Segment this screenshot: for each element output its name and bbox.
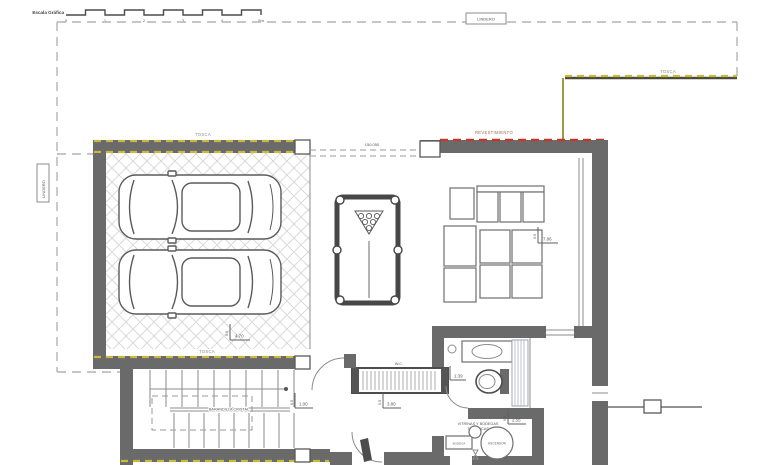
stair-walk-dot: [284, 387, 288, 391]
car-1: [119, 171, 281, 243]
terrace-box: [644, 400, 661, 413]
stair-top-pillar: [295, 356, 310, 369]
hall-bottom-wall-west: [330, 452, 352, 465]
tosca-top-right-label: TOSCA: [660, 69, 676, 74]
bathroom-door-arc: [446, 386, 468, 408]
boundary-top-label: LINDERO: [477, 17, 495, 22]
tosca-garage-bottom-label: TOSCA: [199, 349, 215, 354]
cellar-cabinet-label: BODEGA: [453, 442, 466, 446]
wc-label: W.C.: [395, 362, 403, 366]
dim-living-v: 0.5: [533, 234, 537, 239]
ottoman-4: [512, 265, 542, 298]
right-exterior-wall: [579, 140, 608, 465]
cellar-bottom-door-gap: [450, 456, 472, 465]
sofa-group: [444, 186, 544, 302]
scale-bar: [66, 10, 261, 15]
west-wall-lower: [432, 436, 444, 465]
dim-hall-west-v: 0.5: [290, 400, 294, 405]
cellar-small-circle: [469, 426, 481, 438]
dim-living-h: 7.86: [543, 237, 552, 242]
revestimiento-label: REVESTIMIENTO: [475, 130, 513, 135]
dim-garage-h: 4.70: [235, 334, 244, 339]
level-mark: 150.050: [365, 142, 380, 147]
living-top-wall: REVESTIMIENTO: [420, 130, 608, 157]
cellar-room: VITRINAS Y BODEGAS TEMÁTICAS BODEGA ASCE…: [444, 408, 544, 465]
dim-hall-h: 3.80: [387, 402, 396, 407]
ottoman-3: [480, 265, 510, 298]
dim-cellar-v: 0.5: [503, 416, 507, 421]
stair-block: BARANDILLA CRISTAL: [93, 356, 330, 465]
chaise-1: [444, 226, 476, 266]
dim-hall-v: 0.5: [378, 400, 382, 405]
dim-cellar-h: 2.55: [512, 418, 521, 423]
armchair: [450, 188, 474, 219]
mid-wall-west: [432, 326, 546, 338]
graphic-scale: Escala Gráfica 0 1 2 3 4 5m: [32, 10, 264, 23]
car-2: [119, 246, 281, 318]
billiard-table: [333, 196, 402, 304]
dim-bathroom-h: 1.39: [454, 374, 463, 379]
right-wall-body: [592, 140, 608, 465]
cellar-top-wall: [468, 408, 532, 419]
hall-pillar: [344, 354, 356, 368]
floor-plan-canvas: Escala Gráfica 0 1 2 3 4 5m LINDERO LIND…: [0, 0, 768, 465]
dim-hall-west: 1.00 0.5: [290, 393, 313, 408]
hall-door-arc-top: [312, 358, 344, 390]
garage-top-pillar: [295, 140, 310, 154]
dim-garage-v: 0.5: [225, 331, 229, 336]
dim-hall: 3.80 0.5: [378, 393, 401, 408]
stair-storage-dashed: [152, 396, 252, 430]
railing-label: BARANDILLA CRISTAL: [209, 408, 249, 412]
wardrobe-frame: [352, 368, 448, 393]
wardrobe-end-right: [441, 368, 448, 393]
scale-tick-2: 2: [143, 18, 146, 23]
stair-bottom-pillar: [295, 449, 310, 462]
dim-bathroom-v: 0.5: [445, 372, 449, 377]
mid-wall-window-lines: [546, 330, 574, 335]
terrace-edge: [608, 400, 702, 413]
service-block: W.C. VITRINAS Y BODEGAS TEMÁTICAS: [352, 326, 608, 465]
cellar-east-wall: [532, 408, 544, 465]
chaise-2: [444, 268, 476, 302]
living-top-window-box: [420, 141, 440, 157]
billiard-frame: [337, 197, 398, 303]
boundary-left-label: LINDERO: [41, 180, 46, 198]
sofa-cushion-1: [477, 192, 498, 222]
ottoman-1: [480, 230, 510, 263]
cellar-label-line1: VITRINAS Y BODEGAS: [458, 422, 499, 426]
shower-strip: [512, 340, 528, 406]
garage-left-wall: [93, 153, 106, 356]
elevator-label: ASCENSOR: [488, 442, 507, 446]
hall-door-leaf: [360, 438, 372, 462]
sofa-cushion-3: [523, 192, 544, 222]
top-opening: 150.050: [310, 142, 420, 156]
floor-plan-drawing: Escala Gráfica 0 1 2 3 4 5m LINDERO LIND…: [0, 0, 768, 465]
wardrobe-end-left: [352, 368, 359, 393]
sofa-back: [477, 186, 544, 192]
tosca-retaining-top-right: TOSCA: [563, 69, 737, 140]
dim-hall-west-h: 1.00: [299, 402, 308, 407]
hall-bottom-wall-east: [384, 452, 432, 465]
living-top-wall-body: [420, 140, 608, 153]
sofa-cushion-2: [500, 192, 521, 222]
mid-wall-east: [574, 326, 608, 338]
garage: TOSCA TOSCA: [93, 132, 310, 356]
tosca-garage-top-label: TOSCA: [195, 132, 211, 137]
bathroom-drain: [448, 345, 456, 353]
scale-title: Escala Gráfica: [32, 10, 64, 15]
toilet-bowl: [476, 370, 502, 393]
